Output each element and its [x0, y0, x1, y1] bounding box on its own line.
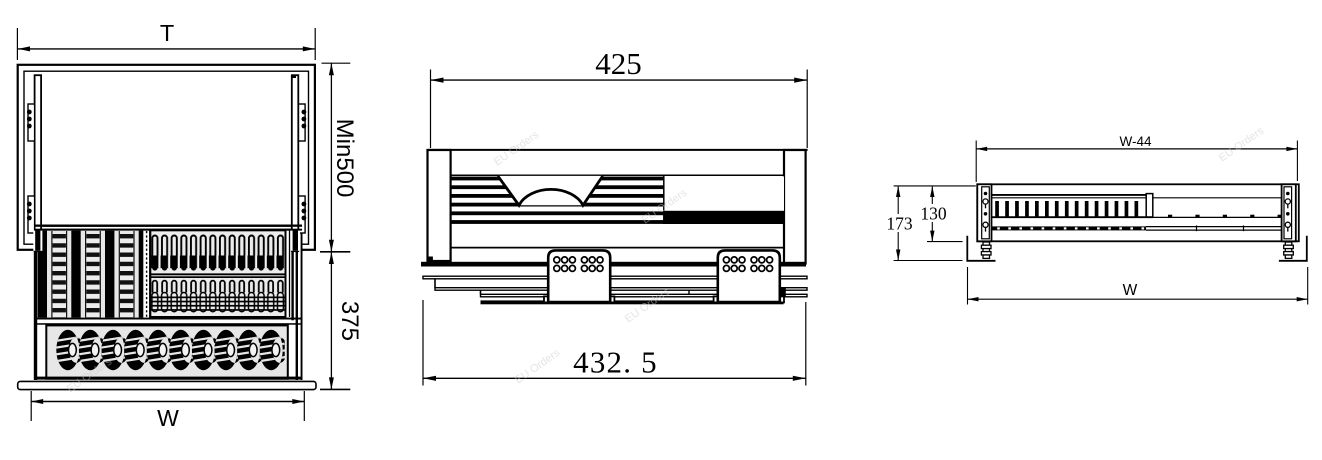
svg-text:W: W: [1123, 282, 1138, 299]
svg-text:T: T: [160, 20, 174, 46]
svg-text:432. 5: 432. 5: [573, 345, 658, 380]
svg-text:W-44: W-44: [1119, 134, 1152, 149]
svg-text:425: 425: [595, 46, 642, 81]
svg-text:130: 130: [920, 204, 947, 224]
svg-text:375: 375: [336, 301, 363, 341]
svg-text:Min500: Min500: [331, 119, 358, 198]
svg-text:173: 173: [886, 214, 913, 234]
svg-text:W: W: [157, 405, 179, 431]
